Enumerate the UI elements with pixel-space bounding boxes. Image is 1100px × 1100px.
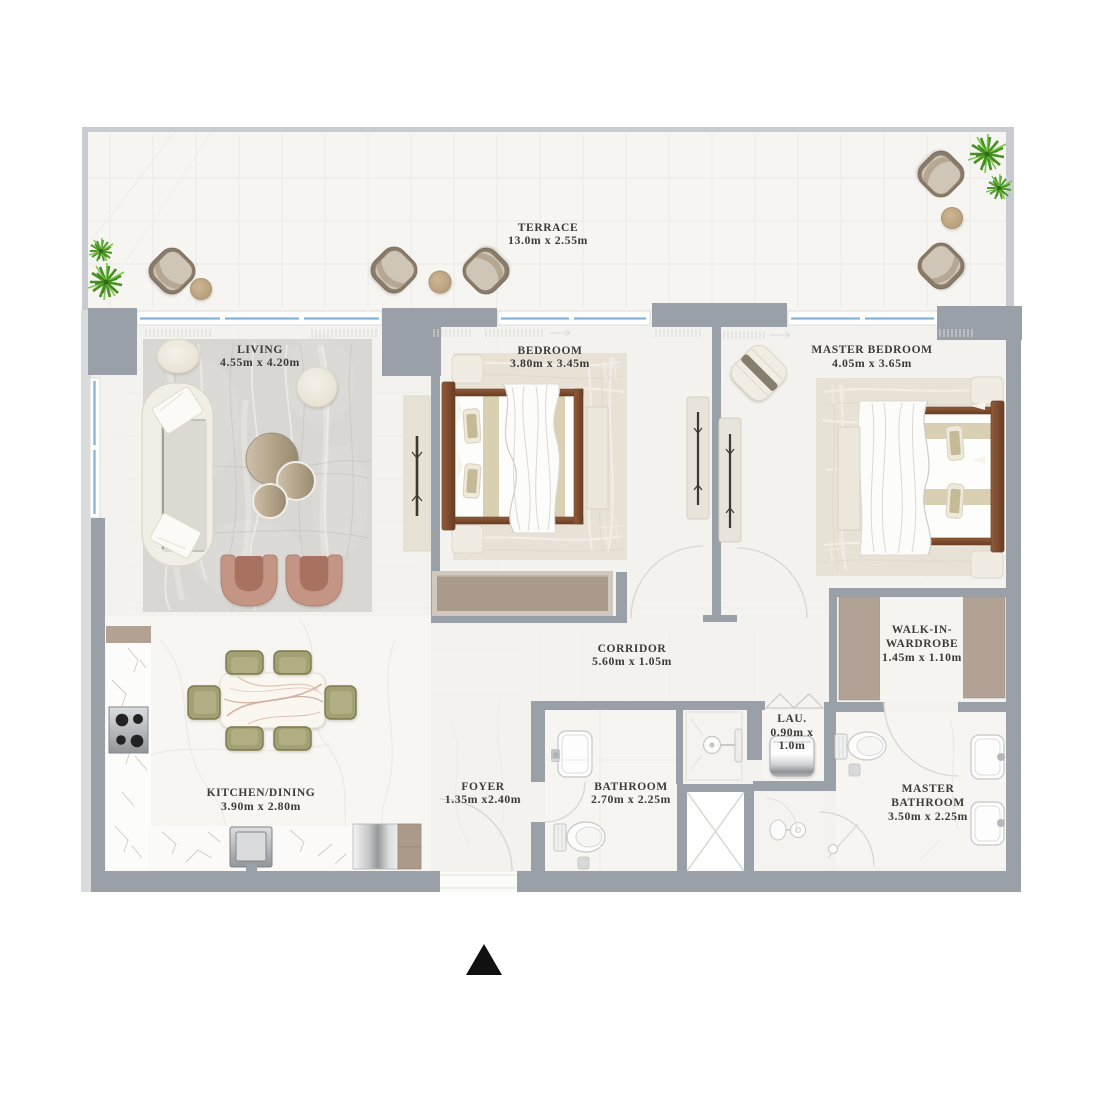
svg-text:MASTER: MASTER xyxy=(902,783,955,795)
svg-text:13.0m x 2.55m: 13.0m x 2.55m xyxy=(508,233,588,247)
svg-text:WARDROBE: WARDROBE xyxy=(886,638,959,650)
svg-text:KITCHEN/DINING: KITCHEN/DINING xyxy=(207,787,316,799)
svg-text:3.50m x 2.25m: 3.50m x 2.25m xyxy=(888,809,968,823)
svg-text:WALK-IN-: WALK-IN- xyxy=(892,624,952,636)
svg-text:1.35m x2.40m: 1.35m x2.40m xyxy=(445,792,521,806)
svg-text:3.80m x 3.45m: 3.80m x 3.45m xyxy=(510,356,590,370)
svg-text:4.05m x 3.65m: 4.05m x 3.65m xyxy=(832,356,912,370)
svg-text:LAU.: LAU. xyxy=(777,713,807,725)
svg-text:1.0m: 1.0m xyxy=(779,738,806,752)
svg-text:3.90m x 2.80m: 3.90m x 2.80m xyxy=(221,799,301,813)
svg-text:2.70m x 2.25m: 2.70m x 2.25m xyxy=(591,792,671,806)
svg-text:MASTER BEDROOM: MASTER BEDROOM xyxy=(811,344,932,356)
svg-text:4.55m x 4.20m: 4.55m x 4.20m xyxy=(220,355,300,369)
svg-text:BATHROOM: BATHROOM xyxy=(891,797,965,809)
svg-text:0.90m x: 0.90m x xyxy=(770,725,813,739)
svg-text:1.45m x 1.10m: 1.45m x 1.10m xyxy=(882,650,962,664)
svg-text:5.60m x 1.05m: 5.60m x 1.05m xyxy=(592,654,672,668)
